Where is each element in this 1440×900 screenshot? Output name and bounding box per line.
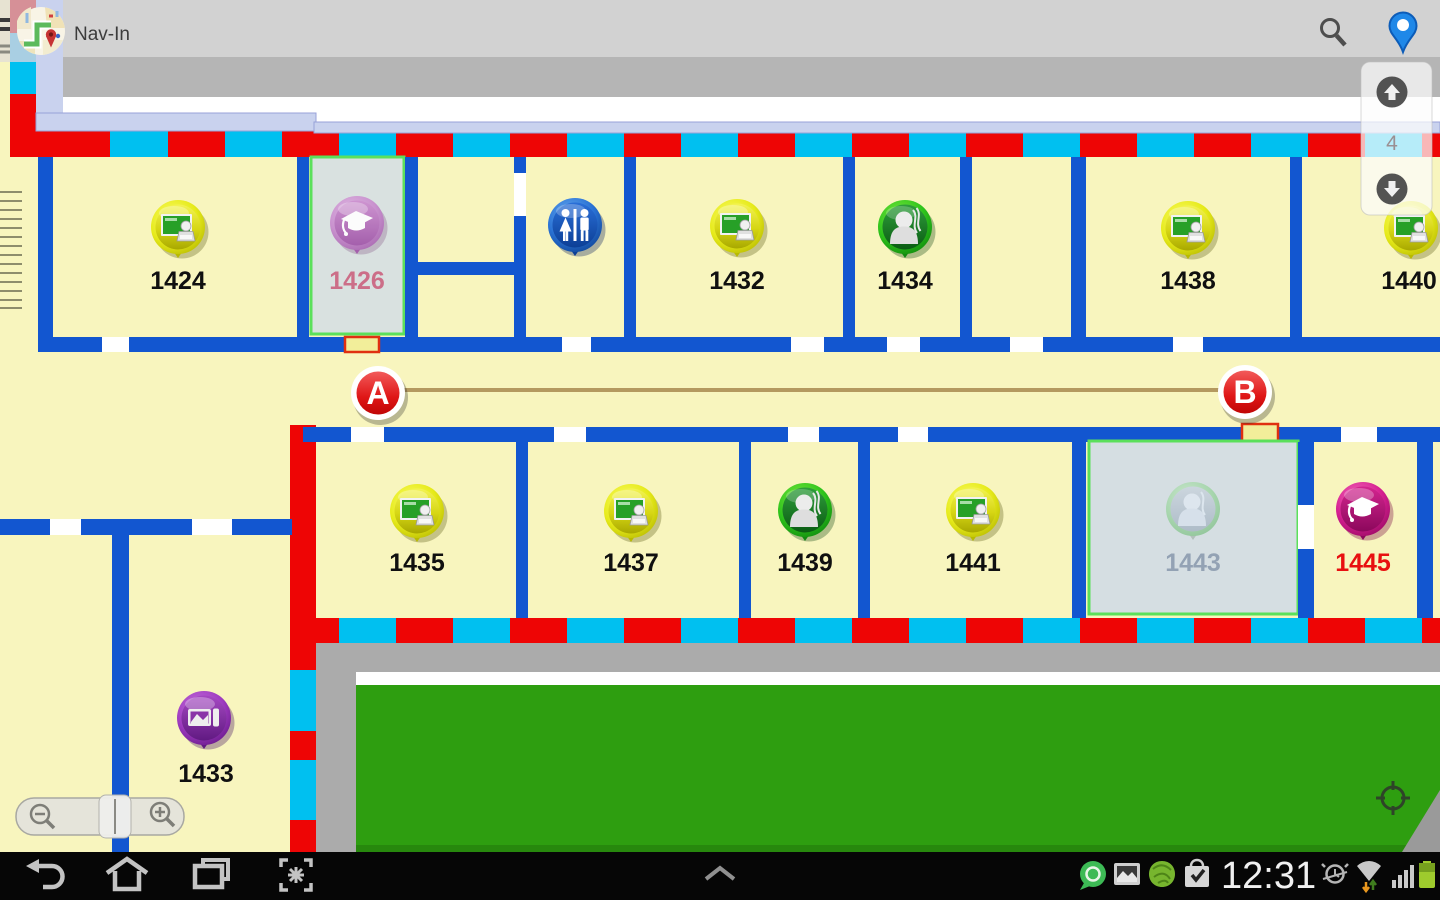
svg-text:1439: 1439 xyxy=(777,549,833,577)
svg-text:1440: 1440 xyxy=(1381,267,1437,295)
svg-text:1437: 1437 xyxy=(603,549,659,577)
svg-text:1441: 1441 xyxy=(945,549,1001,577)
svg-text:1433: 1433 xyxy=(178,760,234,788)
svg-text:1443: 1443 xyxy=(1165,549,1221,577)
svg-text:1435: 1435 xyxy=(389,549,445,577)
svg-text:1434: 1434 xyxy=(877,267,933,295)
svg-text:1445: 1445 xyxy=(1335,549,1391,577)
svg-text:1432: 1432 xyxy=(709,267,765,295)
svg-text:1438: 1438 xyxy=(1160,267,1216,295)
svg-text:1424: 1424 xyxy=(150,267,206,295)
svg-text:A: A xyxy=(366,375,389,411)
svg-text:Nav-In: Nav-In xyxy=(74,24,130,45)
svg-text:B: B xyxy=(1233,374,1256,410)
svg-text:4: 4 xyxy=(1386,132,1398,155)
svg-text:12:31: 12:31 xyxy=(1221,855,1316,897)
svg-text:1426: 1426 xyxy=(329,267,385,295)
